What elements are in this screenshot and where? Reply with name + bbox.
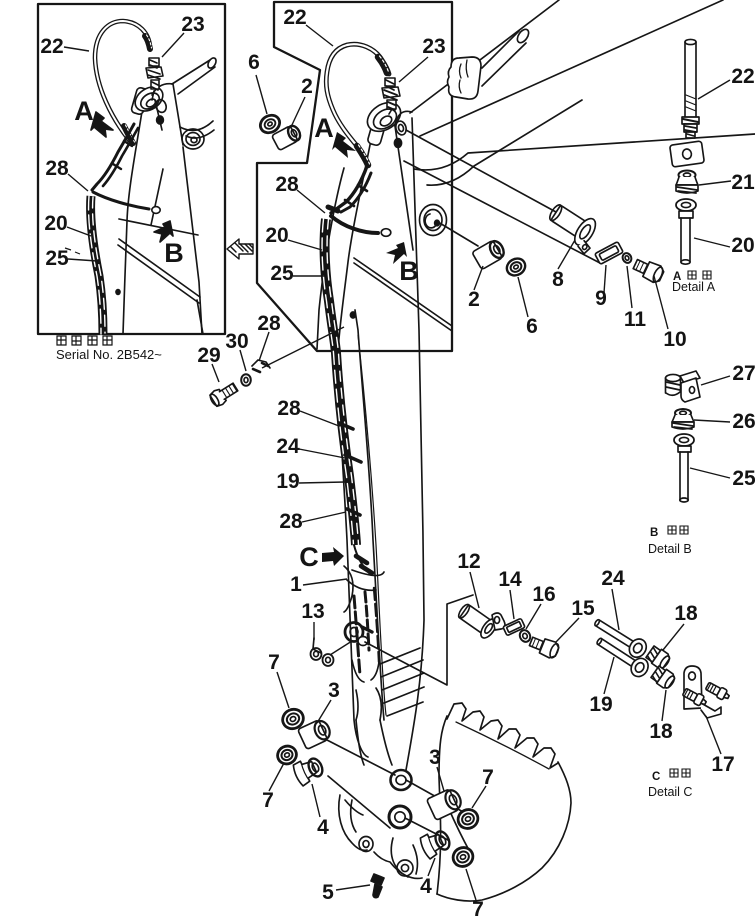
svg-text:7: 7 [262,789,274,812]
svg-text:18: 18 [674,602,698,625]
svg-text:B: B [164,238,184,268]
svg-text:3: 3 [429,746,441,769]
svg-text:14: 14 [498,568,522,591]
svg-text:11: 11 [624,308,647,331]
svg-text:26: 26 [732,410,755,433]
svg-text:3: 3 [328,679,340,702]
svg-text:Detail B: Detail B [648,542,692,556]
svg-text:6: 6 [526,315,538,338]
svg-text:16: 16 [532,583,555,606]
svg-text:B: B [650,527,658,539]
svg-text:23: 23 [422,35,445,58]
svg-text:28: 28 [277,397,301,420]
svg-text:18: 18 [649,720,673,743]
svg-text:28: 28 [275,173,299,196]
svg-text:8: 8 [552,268,564,291]
svg-text:29: 29 [197,344,220,367]
svg-text:15: 15 [571,597,595,620]
svg-text:B: B [399,256,419,286]
svg-text:4: 4 [317,816,329,839]
svg-text:2: 2 [301,75,313,98]
svg-text:9: 9 [595,287,607,310]
svg-text:Detail A: Detail A [672,280,716,294]
svg-text:25: 25 [45,247,69,270]
svg-text:7: 7 [472,898,484,919]
svg-text:20: 20 [44,212,67,235]
svg-text:22: 22 [40,35,63,58]
svg-text:12: 12 [457,550,480,573]
svg-text:17: 17 [711,753,734,776]
svg-text:19: 19 [589,693,612,716]
svg-text:A: A [314,113,334,143]
svg-text:1: 1 [290,573,302,596]
svg-text:28: 28 [45,157,69,180]
svg-text:7: 7 [482,766,494,789]
svg-text:A: A [74,96,94,126]
svg-text:25: 25 [732,467,755,490]
svg-text:Detail C: Detail C [648,785,692,799]
svg-text:22: 22 [731,65,754,88]
svg-text:6: 6 [248,51,260,74]
svg-text:2: 2 [468,288,480,311]
svg-text:20: 20 [731,234,754,257]
svg-text:28: 28 [257,312,281,335]
svg-text:C: C [299,542,319,572]
svg-text:13: 13 [301,600,324,623]
svg-text:21: 21 [731,171,755,194]
svg-text:22: 22 [283,6,306,29]
svg-text:25: 25 [270,262,294,285]
svg-text:C: C [652,771,660,783]
svg-text:24: 24 [601,567,625,590]
svg-text:Serial No. 2B542~: Serial No. 2B542~ [56,347,162,362]
svg-text:27: 27 [732,362,755,385]
svg-text:10: 10 [663,328,686,351]
svg-text:23: 23 [181,13,204,36]
svg-text:20: 20 [265,224,288,247]
svg-text:4: 4 [420,875,432,898]
svg-text:28: 28 [279,510,303,533]
svg-text:5: 5 [322,881,334,904]
svg-text:7: 7 [268,651,280,674]
svg-text:30: 30 [225,330,248,353]
svg-text:24: 24 [276,435,300,458]
svg-text:19: 19 [276,470,299,493]
